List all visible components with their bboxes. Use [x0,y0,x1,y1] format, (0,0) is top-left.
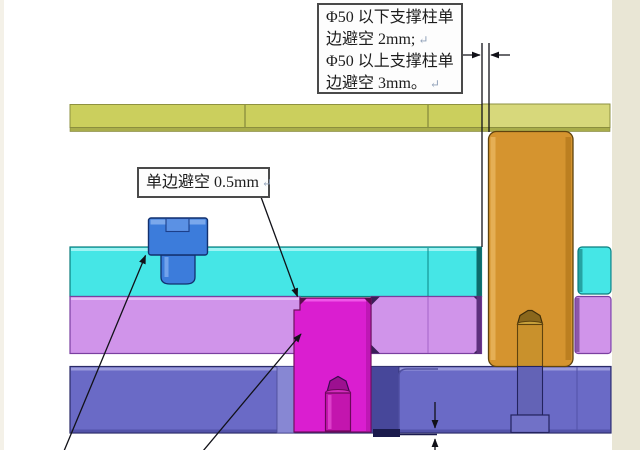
violet-plate-gap-shade-left [477,297,482,353]
pillar-screw-head [511,415,549,433]
left-margin-strip [0,0,4,450]
blue-screw-shaft-highlight [165,257,169,277]
cyan-plate-right-gap-shade [579,249,583,292]
magenta-insert [294,298,371,432]
cyan-plate-right-section [578,247,611,294]
support-pillar-right-shade [566,137,572,360]
violet-plate-left-highlight [71,298,299,301]
mold-section-diagram: Φ50 以下支撑柱单 边避空 2mm;↵ Φ50 以上支撑柱单 边避空 3mm。… [0,0,640,450]
right-margin-strip [612,0,640,450]
return-mark-icon: ↵ [418,33,428,47]
support-pillar-left-highlight [491,137,496,360]
top-plate-left-section [70,105,482,128]
return-mark-icon: ↵ [262,176,272,190]
violet-plate-mid-section [371,297,482,354]
violet-plate-right-gap-shade [576,298,580,352]
ejector-spacer-block-left [277,367,294,434]
violet-plate-left-section [70,297,300,354]
blue-screw-socket [166,219,189,232]
insert-gap-note-text: 单边避空 0.5mm [146,174,259,191]
violet-plate-right-section [575,297,611,354]
magenta-insert-right-shade [366,299,371,431]
pillar-gap-note-box: Φ50 以下支撑柱单 边避空 2mm;↵ Φ50 以上支撑柱单 边避空 3mm。… [317,3,463,94]
pillar-gap-note-line1: Φ50 以下支撑柱单 [326,7,459,29]
top-plate-right-section [482,104,610,128]
pillar-screw-shaft-lower [518,367,543,416]
top-plate [70,104,610,132]
insert-gap-note-box: 单边避空 0.5mm↵ [137,167,270,198]
pillar-screw-shaft-upper [518,325,543,367]
insert-pocket-dark-wall [371,367,399,434]
magenta-insert-top-highlight [301,299,369,302]
pillar-gap-note-line4: 边避空 3mm。↵ [326,73,459,96]
pillar-gap-note-line3: Φ50 以上支撑柱单 [326,51,459,73]
return-mark-icon: ↵ [430,77,440,91]
insert-screw-shaft-highlight [328,395,332,429]
pillar-gap-note-line2: 边避空 2mm;↵ [326,29,459,52]
pocket-bottom-dark-strip [373,429,400,437]
cyan-plate-top-highlight [71,248,480,251]
cyan-plate-gap-shade-left [477,248,482,297]
